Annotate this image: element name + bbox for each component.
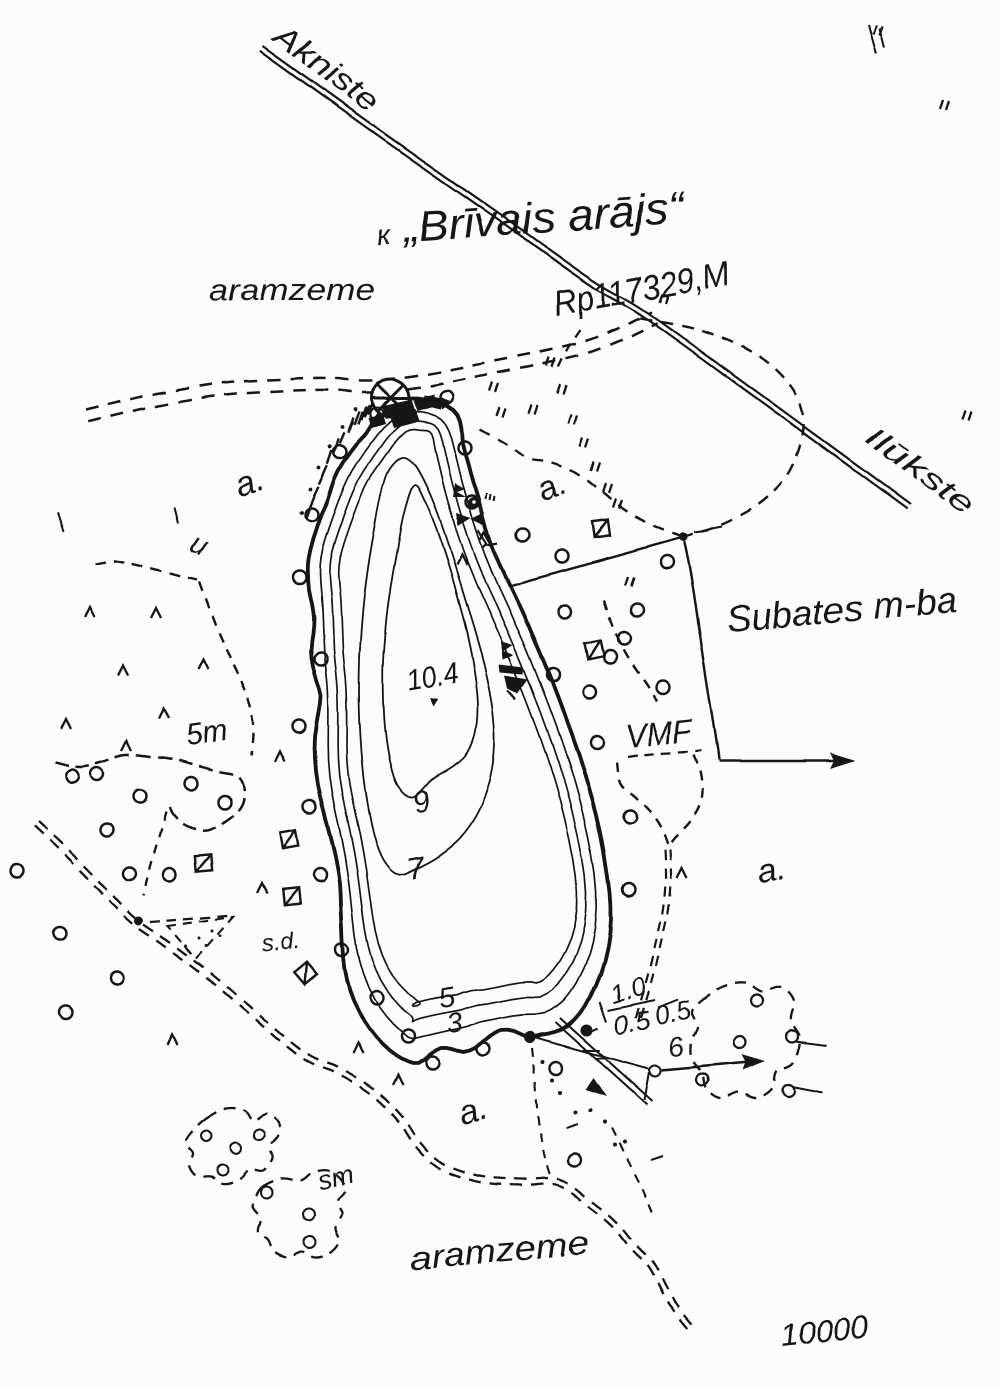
svg-text:s.d.: s.d. (260, 928, 301, 958)
svg-text:VMF: VMF (624, 711, 696, 754)
svg-text:aramzeme: aramzeme (209, 272, 375, 307)
svg-text:5m: 5m (183, 712, 231, 753)
svg-text:0.5: 0.5 (612, 1005, 653, 1041)
